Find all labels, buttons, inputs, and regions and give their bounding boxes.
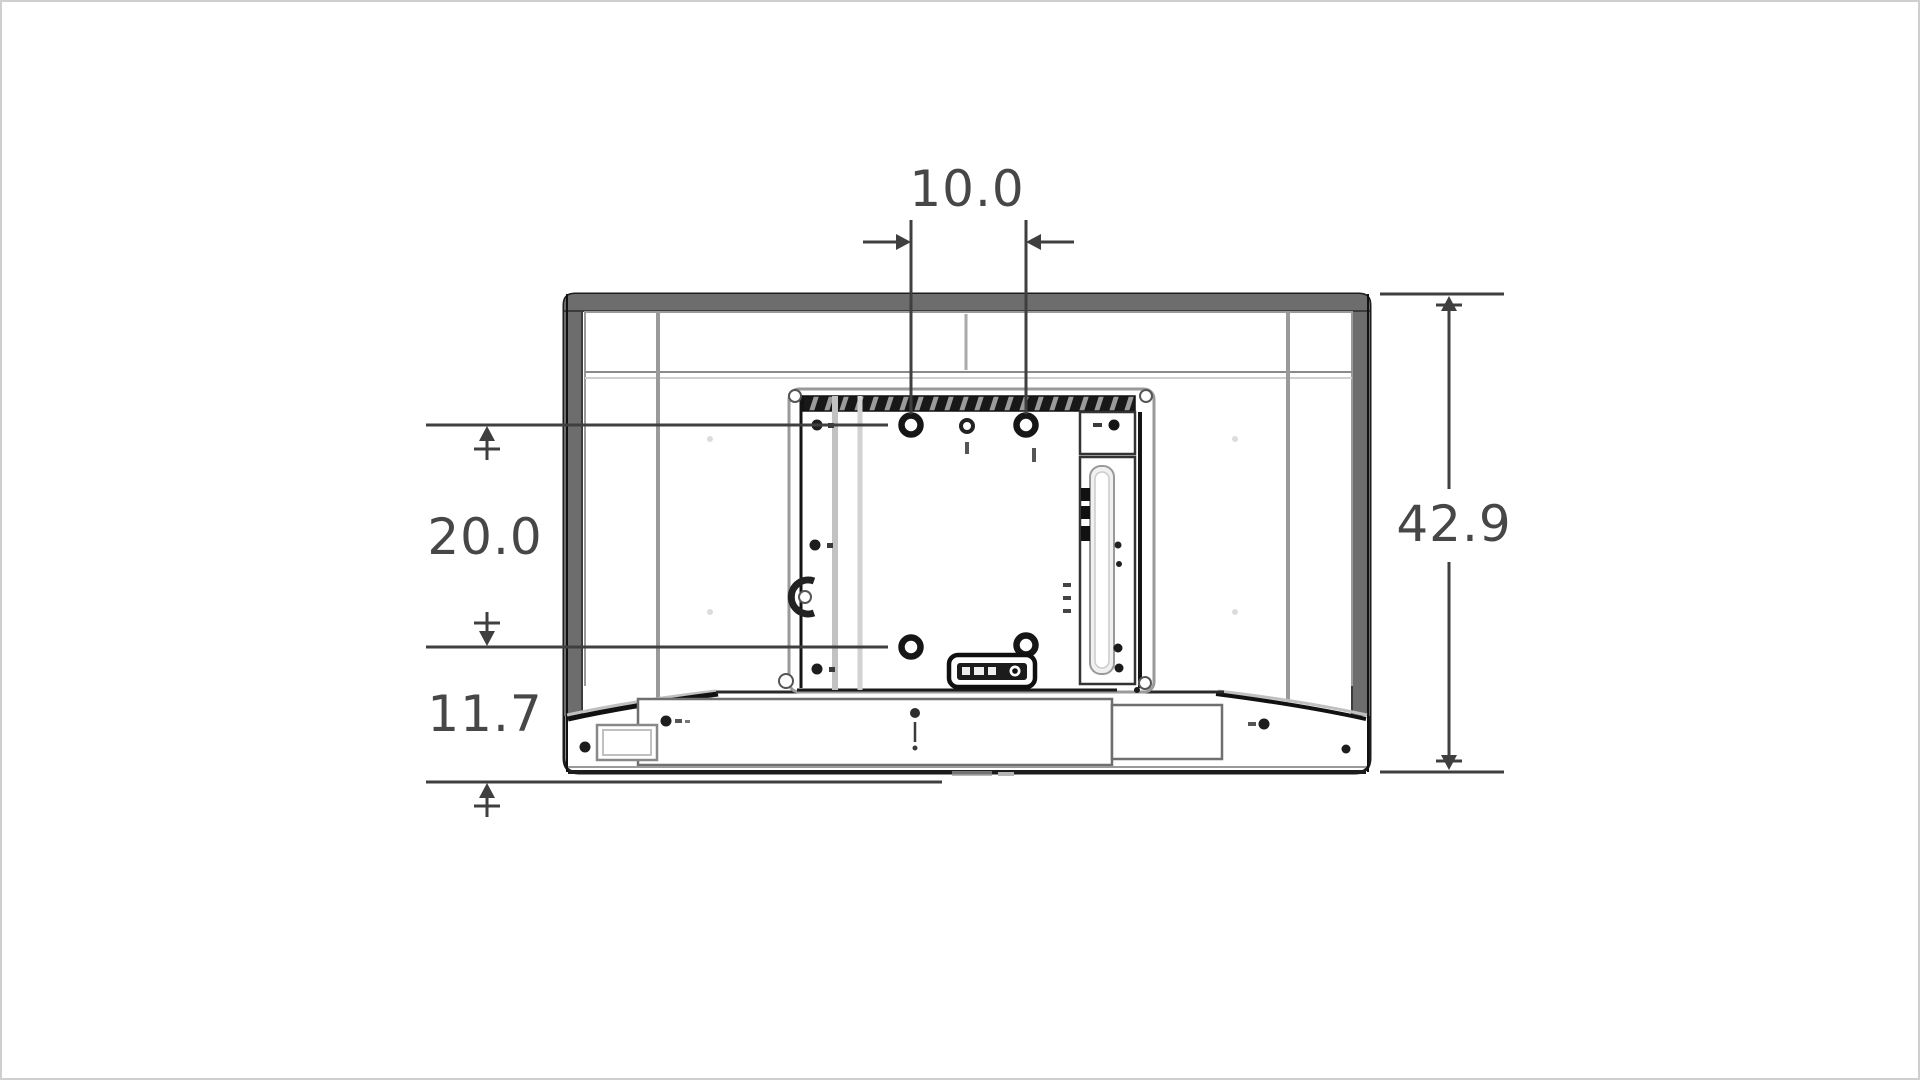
av-connector-block — [949, 655, 1035, 687]
dimension-label-hole-spacing-width: 10.0 — [892, 164, 1042, 214]
dimension-bottom-offset — [426, 782, 942, 817]
dimension-label-hole-spacing-height: 20.0 — [410, 512, 560, 562]
dimension-label-overall-height: 42.9 — [1379, 499, 1529, 549]
dimension-label-bottom-offset: 11.7 — [410, 689, 560, 739]
tv-rear-dimension-diagram: 10.0 20.0 11.7 42.9 — [0, 0, 1920, 1080]
